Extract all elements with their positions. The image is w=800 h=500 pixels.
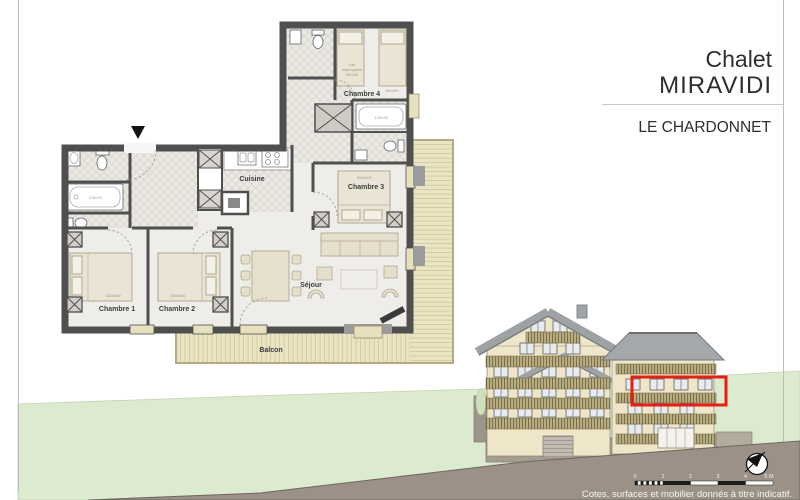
chambre2-label: Chambre 2 (159, 306, 195, 313)
toilet-1 (97, 156, 107, 170)
toilet-3 (313, 36, 323, 49)
title-line2: MIRAVIDI (659, 72, 772, 99)
project-name: LE CHARDONNET (638, 119, 771, 136)
dining-table (252, 251, 289, 301)
svg-text:5 M: 5 M (764, 474, 774, 480)
coffee-table-1 (317, 267, 332, 280)
svg-text:160x200: 160x200 (105, 293, 121, 298)
svg-text:0: 0 (633, 474, 636, 480)
balcon-label: Balcon (259, 347, 282, 354)
chambre3-label: Chambre 3 (348, 184, 384, 191)
stove (262, 150, 288, 167)
svg-text:90x200: 90x200 (346, 73, 358, 77)
sejour-label: Séjour (300, 282, 322, 289)
svg-text:160x200: 160x200 (356, 175, 372, 180)
svg-text:Lits: Lits (349, 63, 355, 67)
entrance-marker-icon (131, 126, 145, 139)
svg-text:1: 1 (661, 474, 664, 480)
left-building (477, 305, 619, 456)
svg-text:4: 4 (744, 474, 747, 480)
toilet-tank-4 (398, 140, 404, 152)
floor-plan: Balcon (65, 25, 453, 363)
chimney (577, 305, 587, 318)
toilet-tank-3 (312, 30, 324, 35)
svg-text:170x75: 170x75 (374, 115, 388, 120)
coffee-table-2 (384, 266, 397, 278)
svg-text:superposés: superposés (342, 68, 362, 72)
svg-text:170x75: 170x75 (88, 195, 102, 200)
chambre1-bed (70, 253, 132, 301)
title-line1: Chalet (706, 46, 773, 72)
elevation-drawing (474, 305, 752, 462)
chambre1-label: Chambre 1 (99, 306, 135, 313)
title-block: Chalet MIRAVIDI LE CHARDONNET (602, 46, 783, 136)
svg-text:3: 3 (716, 474, 719, 480)
svg-text:160x200: 160x200 (170, 293, 186, 298)
cuisine-label: Cuisine (239, 176, 264, 183)
sink-4 (355, 150, 367, 160)
chambre4-label: Chambre 4 (344, 91, 380, 98)
footnote: Cotes, surfaces et mobilier donnés à tit… (582, 489, 792, 500)
svg-text:90x200: 90x200 (385, 88, 399, 93)
svg-text:2: 2 (689, 474, 692, 480)
right-roof (602, 333, 724, 360)
drawing-canvas: Balcon (0, 0, 800, 500)
toilet-4 (384, 141, 396, 151)
bush (476, 389, 486, 415)
chambre2-bed (158, 253, 220, 301)
sink-3 (290, 30, 301, 44)
garage-door (543, 436, 573, 458)
sofa (321, 233, 398, 256)
architectural-drawing-sheet: Balcon (0, 0, 800, 500)
